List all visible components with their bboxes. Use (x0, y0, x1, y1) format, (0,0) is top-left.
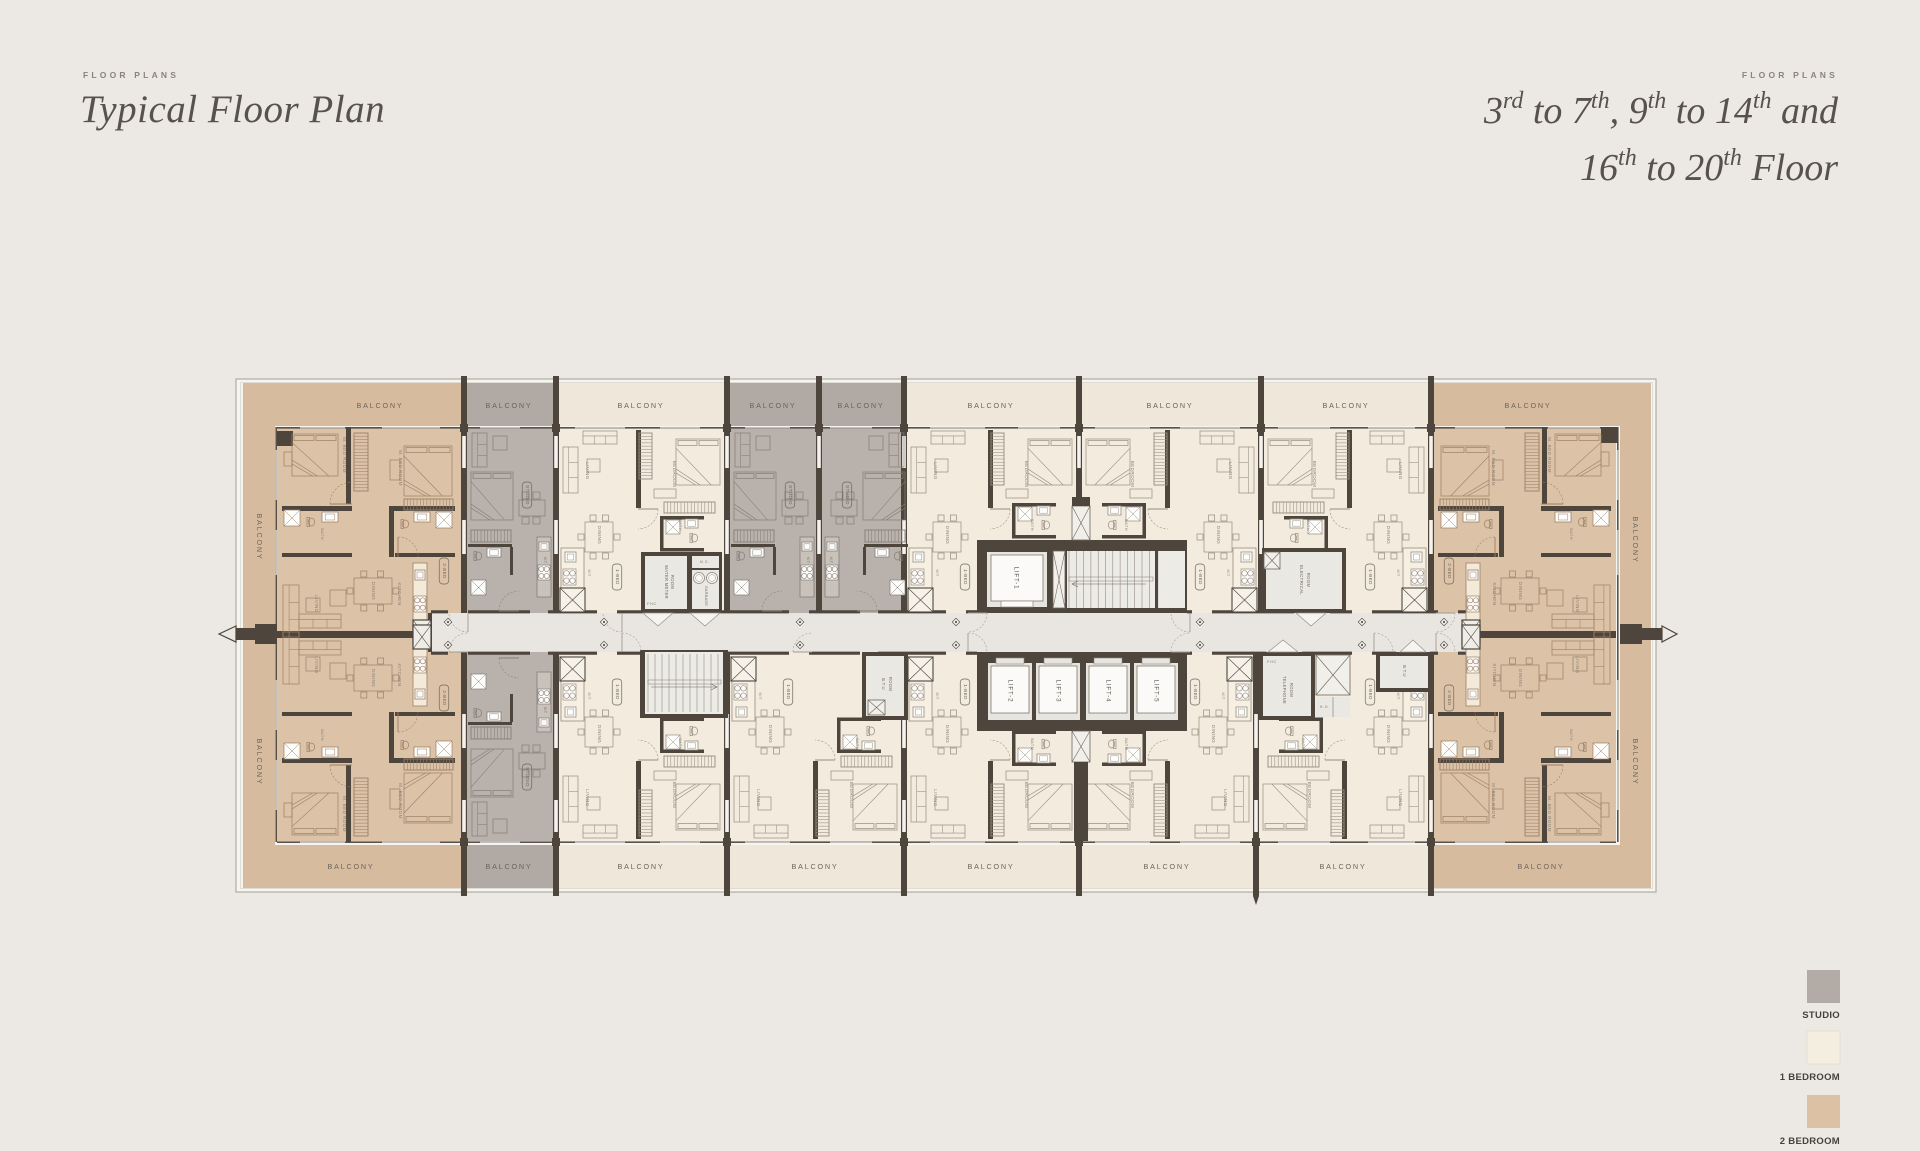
svg-text:LIVING: LIVING (314, 595, 319, 612)
svg-text:BALCONY: BALCONY (1320, 862, 1367, 871)
svg-text:TELEPHONE: TELEPHONE (1282, 676, 1287, 704)
svg-text:KIT: KIT (935, 569, 940, 576)
svg-text:FHC: FHC (647, 602, 657, 606)
svg-text:BALCONY: BALCONY (328, 862, 375, 871)
svg-text:LIVING: LIVING (585, 789, 590, 806)
svg-text:BALCONY: BALCONY (1147, 401, 1194, 410)
svg-text:BALCONY: BALCONY (838, 401, 885, 410)
svg-text:BEDROOM: BEDROOM (1312, 461, 1317, 488)
svg-text:KIT: KIT (587, 569, 592, 576)
svg-text:ROOM: ROOM (1306, 573, 1311, 588)
svg-text:KIT: KIT (1226, 569, 1231, 576)
svg-text:ELECTRICAL: ELECTRICAL (1299, 565, 1304, 595)
svg-text:BALCONY: BALCONY (968, 862, 1015, 871)
svg-text:2-BED: 2-BED (1447, 563, 1452, 579)
svg-text:DINING: DINING (945, 725, 950, 744)
svg-text:LIFT-5: LIFT-5 (1152, 680, 1159, 703)
svg-text:BEDROOM: BEDROOM (1024, 782, 1029, 809)
svg-text:DINING: DINING (371, 582, 376, 601)
svg-text:LIVING: LIVING (756, 789, 761, 806)
svg-text:LIFT-2: LIFT-2 (1006, 680, 1013, 703)
svg-text:BALCONY: BALCONY (1323, 401, 1370, 410)
svg-text:1-BED: 1-BED (615, 684, 620, 700)
svg-text:DINING: DINING (768, 725, 773, 744)
svg-text:M. BED ROOM: M. BED ROOM (398, 450, 403, 486)
svg-text:DINING: DINING (1518, 582, 1523, 601)
svg-text:KIT: KIT (543, 707, 547, 714)
svg-text:2-BED: 2-BED (442, 563, 447, 579)
svg-text:1-BED: 1-BED (963, 569, 968, 585)
svg-text:Typical Floor Plan: Typical Floor Plan (80, 88, 385, 131)
svg-text:M. BED ROOM: M. BED ROOM (1547, 437, 1552, 473)
svg-text:KITCHEN: KITCHEN (1492, 664, 1497, 687)
svg-text:1-BED: 1-BED (1368, 569, 1373, 585)
svg-text:LIFT-4: LIFT-4 (1104, 680, 1111, 703)
svg-text:B.T.U: B.T.U (881, 678, 886, 690)
svg-text:M. BED ROOM: M. BED ROOM (398, 783, 403, 819)
svg-text:BATH: BATH (1124, 738, 1129, 750)
svg-text:KITCHEN: KITCHEN (397, 664, 402, 687)
svg-text:STUDIO: STUDIO (525, 767, 530, 787)
svg-text:BATH: BATH (320, 528, 325, 540)
svg-text:1-BED: 1-BED (615, 569, 620, 585)
svg-text:DINING: DINING (1386, 725, 1391, 744)
svg-text:KIT: KIT (758, 692, 763, 699)
svg-text:KIT: KIT (1396, 569, 1401, 576)
svg-text:BALCONY: BALCONY (1518, 862, 1565, 871)
svg-text:KITCHEN: KITCHEN (397, 583, 402, 606)
svg-text:BATH: BATH (1301, 738, 1306, 750)
svg-text:LIVING: LIVING (585, 462, 590, 479)
svg-text:LIFT-1: LIFT-1 (1012, 567, 1019, 590)
svg-text:BEDROOM: BEDROOM (672, 461, 677, 488)
svg-text:BEDROOM: BEDROOM (1307, 782, 1312, 809)
svg-text:LIVING: LIVING (1228, 462, 1233, 479)
svg-text:BALCONY: BALCONY (618, 401, 665, 410)
svg-text:LIVING: LIVING (1223, 789, 1228, 806)
svg-text:FLOOR PLANS: FLOOR PLANS (83, 70, 179, 80)
svg-text:STUDIO: STUDIO (1802, 1010, 1840, 1021)
svg-text:BEDROOM: BEDROOM (849, 782, 854, 809)
svg-text:DINING: DINING (1518, 669, 1523, 688)
svg-text:DINING: DINING (371, 669, 376, 688)
svg-text:BATH: BATH (320, 729, 325, 741)
svg-text:H.D.: H.D. (1320, 705, 1330, 709)
svg-text:BEDROOM: BEDROOM (1130, 782, 1135, 809)
svg-text:STUDIO: STUDIO (525, 485, 530, 505)
svg-text:LIVING: LIVING (1398, 789, 1403, 806)
svg-text:DINING: DINING (1216, 526, 1221, 545)
svg-text:BATH: BATH (1030, 519, 1035, 531)
svg-text:BALCONY: BALCONY (1144, 862, 1191, 871)
svg-text:BALCONY: BALCONY (1631, 739, 1640, 786)
svg-text:BATH: BATH (855, 738, 860, 750)
svg-text:1-BED: 1-BED (1368, 684, 1373, 700)
svg-text:BALCONY: BALCONY (1505, 401, 1552, 410)
svg-text:M. BED ROOM: M. BED ROOM (1547, 796, 1552, 832)
svg-text:BATH: BATH (1306, 519, 1311, 531)
svg-text:BALCONY: BALCONY (255, 739, 264, 786)
svg-text:BALCONY: BALCONY (486, 401, 533, 410)
svg-text:KIT: KIT (1396, 692, 1401, 699)
svg-text:KIT: KIT (829, 557, 833, 564)
svg-text:LIFT-3: LIFT-3 (1054, 680, 1061, 703)
svg-text:BATH: BATH (1124, 519, 1129, 531)
svg-text:LIVING: LIVING (314, 656, 319, 673)
svg-text:2-BED: 2-BED (442, 690, 447, 706)
svg-text:WATER METER: WATER METER (664, 565, 669, 599)
svg-text:KITCHEN: KITCHEN (1492, 583, 1497, 606)
svg-text:BALCONY: BALCONY (618, 862, 665, 871)
svg-text:M. BED ROOM: M. BED ROOM (1491, 783, 1496, 819)
svg-text:BATH: BATH (678, 519, 683, 531)
svg-text:DINING: DINING (945, 526, 950, 545)
svg-text:BALCONY: BALCONY (255, 514, 264, 561)
svg-text:M. BED ROOM: M. BED ROOM (342, 796, 347, 832)
svg-text:1-BED: 1-BED (1198, 569, 1203, 585)
svg-text:1-BED: 1-BED (1193, 684, 1198, 700)
svg-text:BATH: BATH (1569, 729, 1574, 741)
svg-text:BALCONY: BALCONY (968, 401, 1015, 410)
svg-text:M. BED ROOM: M. BED ROOM (1491, 450, 1496, 486)
svg-text:BALCONY: BALCONY (1631, 517, 1640, 564)
svg-text:DINING: DINING (1211, 725, 1216, 744)
svg-text:B.T.U: B.T.U (1402, 665, 1407, 677)
svg-text:1-BED: 1-BED (786, 684, 791, 700)
svg-text:GARBAGE: GARBAGE (704, 586, 708, 606)
svg-text:BATH: BATH (1569, 528, 1574, 540)
svg-text:STUDIO: STUDIO (845, 485, 850, 505)
svg-text:2 BEDROOM: 2 BEDROOM (1780, 1136, 1840, 1147)
svg-text:M. BED ROOM: M. BED ROOM (342, 437, 347, 473)
svg-text:BATH: BATH (678, 738, 683, 750)
svg-text:ROOM: ROOM (1289, 683, 1294, 697)
svg-text:BALCONY: BALCONY (486, 862, 533, 871)
svg-text:KIT: KIT (1221, 692, 1226, 699)
svg-text:STUDIO: STUDIO (788, 485, 793, 505)
svg-text:KIT: KIT (587, 692, 592, 699)
svg-text:ROOM: ROOM (670, 575, 675, 589)
svg-text:1-BED: 1-BED (963, 684, 968, 700)
svg-text:BALCONY: BALCONY (792, 862, 839, 871)
svg-text:KIT: KIT (543, 557, 547, 564)
svg-text:DINING: DINING (1386, 526, 1391, 545)
svg-text:LIVING: LIVING (933, 462, 938, 479)
svg-text:2-BED: 2-BED (1447, 690, 1452, 706)
svg-text:DINING: DINING (597, 526, 602, 545)
svg-text:BEDROOM: BEDROOM (1024, 461, 1029, 488)
svg-text:DINING: DINING (597, 725, 602, 744)
svg-text:LIVING: LIVING (933, 789, 938, 806)
svg-text:1 BEDROOM: 1 BEDROOM (1780, 1072, 1840, 1083)
svg-text:KIT: KIT (806, 557, 810, 564)
svg-text:LIVING: LIVING (1398, 462, 1403, 479)
svg-text:M.D.: M.D. (700, 560, 710, 564)
svg-text:FHC: FHC (1267, 660, 1277, 664)
svg-text:BATH: BATH (1030, 738, 1035, 750)
svg-text:BALCONY: BALCONY (750, 401, 797, 410)
svg-text:BEDROOM: BEDROOM (672, 782, 677, 809)
svg-text:LIVING: LIVING (1575, 595, 1580, 612)
svg-text:KIT: KIT (935, 692, 940, 699)
svg-text:BALCONY: BALCONY (357, 401, 404, 410)
svg-text:LIVING: LIVING (1575, 656, 1580, 673)
svg-text:BEDROOM: BEDROOM (1130, 461, 1135, 488)
svg-text:FLOOR PLANS: FLOOR PLANS (1742, 70, 1838, 80)
svg-text:ROOM: ROOM (888, 677, 893, 691)
